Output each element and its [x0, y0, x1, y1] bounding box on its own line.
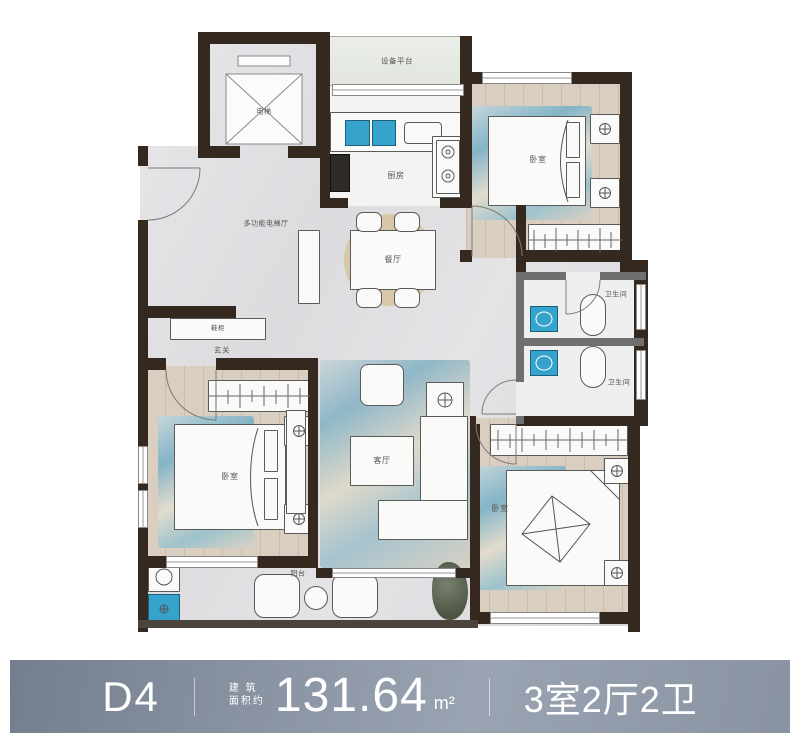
area-value: 131.64 — [275, 676, 428, 717]
toilet-lower — [530, 350, 558, 376]
partition — [516, 416, 524, 424]
bar-divider — [194, 678, 195, 716]
balcony-chair — [332, 574, 378, 618]
living-label: 客厅 — [374, 457, 391, 465]
wall-segment — [516, 205, 526, 280]
wardrobe-bottom-bedroom — [490, 424, 628, 456]
tv-console — [286, 410, 306, 514]
wall-segment — [440, 198, 472, 208]
wall-segment — [460, 84, 472, 206]
wall-segment — [198, 32, 210, 158]
dining-label: 餐厅 — [385, 256, 402, 264]
armchair — [360, 364, 404, 406]
wall-segment — [316, 32, 330, 158]
balcony-table — [304, 586, 328, 610]
bed-bottom — [506, 470, 620, 586]
wall-segment — [138, 220, 148, 632]
floor-plan-page: 电梯 多功能电梯厅 设备平台 厨房 卧室 餐厅 卫生间 卫生间 鞋柜 玄关 卧室… — [0, 0, 800, 738]
pillow — [264, 478, 278, 520]
bedroom-bottom-label: 卧室 — [492, 505, 509, 513]
window — [636, 350, 646, 400]
balcony-chair — [254, 574, 300, 618]
wall-segment — [198, 146, 240, 158]
outside-mask — [138, 28, 200, 146]
layout-summary: 3室2厅2卫 — [524, 671, 698, 723]
window — [636, 284, 646, 330]
wall-segment — [524, 250, 632, 262]
nightstand — [604, 560, 630, 586]
partition — [516, 272, 524, 382]
nightstand — [604, 458, 630, 484]
pillow — [264, 430, 278, 472]
wardrobe-left-bedroom — [208, 380, 310, 412]
pillow — [566, 122, 580, 158]
nightstand — [590, 178, 620, 208]
oven — [330, 154, 350, 192]
balcony-slider-window — [332, 568, 456, 578]
vanity-lower — [580, 346, 606, 388]
outside-mask — [640, 424, 668, 632]
bathroom-upper-label: 卫生间 — [605, 292, 628, 299]
outside-mask — [646, 272, 668, 424]
wall-segment — [320, 198, 348, 208]
shoe-cabinet-label: 鞋柜 — [211, 326, 225, 333]
elevator-label: 电梯 — [257, 109, 272, 116]
kitchen-label: 厨房 — [388, 172, 405, 180]
kitchen-sink-right — [372, 120, 396, 146]
elevator-hall-label: 多功能电梯厅 — [244, 221, 289, 228]
plant-table — [426, 382, 464, 418]
window — [332, 84, 464, 96]
dining-chair — [356, 288, 382, 308]
dining-chair — [356, 212, 382, 232]
wall-segment — [456, 568, 470, 578]
window — [138, 490, 148, 528]
kitchen-sink-left — [345, 120, 370, 146]
hall-cabinet — [298, 230, 320, 304]
bar-divider — [489, 678, 490, 716]
window — [482, 72, 572, 84]
wall-segment — [620, 72, 632, 272]
wall-segment — [628, 424, 640, 632]
window — [490, 612, 600, 624]
wall-segment — [138, 146, 148, 166]
dining-chair — [394, 288, 420, 308]
area-unit: m² — [434, 693, 455, 714]
bedroom-top-label: 卧室 — [530, 156, 547, 164]
sofa-chaise — [378, 500, 468, 540]
wall-segment — [216, 358, 318, 370]
bedroom-left-label: 卧室 — [222, 473, 239, 481]
outside-mask — [632, 28, 668, 272]
partition — [516, 338, 644, 346]
window — [138, 446, 148, 484]
wall-segment — [138, 306, 236, 318]
wall-segment — [288, 146, 330, 158]
equipment-platform-label: 设备平台 — [381, 57, 413, 65]
area-group: 建 筑 面积约 131.64 m² — [229, 676, 455, 717]
area-prefix-line2: 面积约 — [229, 697, 265, 707]
info-bar: D4 建 筑 面积约 131.64 m² 3室2厅2卫 — [10, 660, 790, 733]
wall-segment — [198, 32, 328, 44]
partition — [600, 272, 646, 280]
wall-segment — [316, 568, 332, 578]
entry-label: 玄关 — [214, 346, 230, 354]
area-prefix: 建 筑 面积约 — [229, 684, 265, 707]
wall-segment — [308, 358, 318, 568]
nightstand — [590, 114, 620, 144]
bathroom-lower-label: 卫生间 — [608, 380, 631, 387]
wall-segment — [470, 424, 480, 614]
unit-name: D4 — [102, 673, 160, 721]
area-prefix-line1: 建 筑 — [229, 684, 265, 694]
outside-mask — [472, 28, 632, 72]
pillow — [566, 162, 580, 198]
vanity-upper — [580, 294, 606, 336]
wall-segment — [460, 250, 472, 262]
wall-segment — [146, 358, 166, 370]
toilet-upper — [530, 306, 558, 332]
balcony-rail — [138, 620, 478, 628]
stove — [436, 140, 460, 194]
dining-chair — [394, 212, 420, 232]
floor-plan: 电梯 多功能电梯厅 设备平台 厨房 卧室 餐厅 卫生间 卫生间 鞋柜 玄关 卧室… — [138, 28, 668, 632]
window — [166, 556, 258, 568]
balcony-label: 阳台 — [291, 571, 306, 578]
